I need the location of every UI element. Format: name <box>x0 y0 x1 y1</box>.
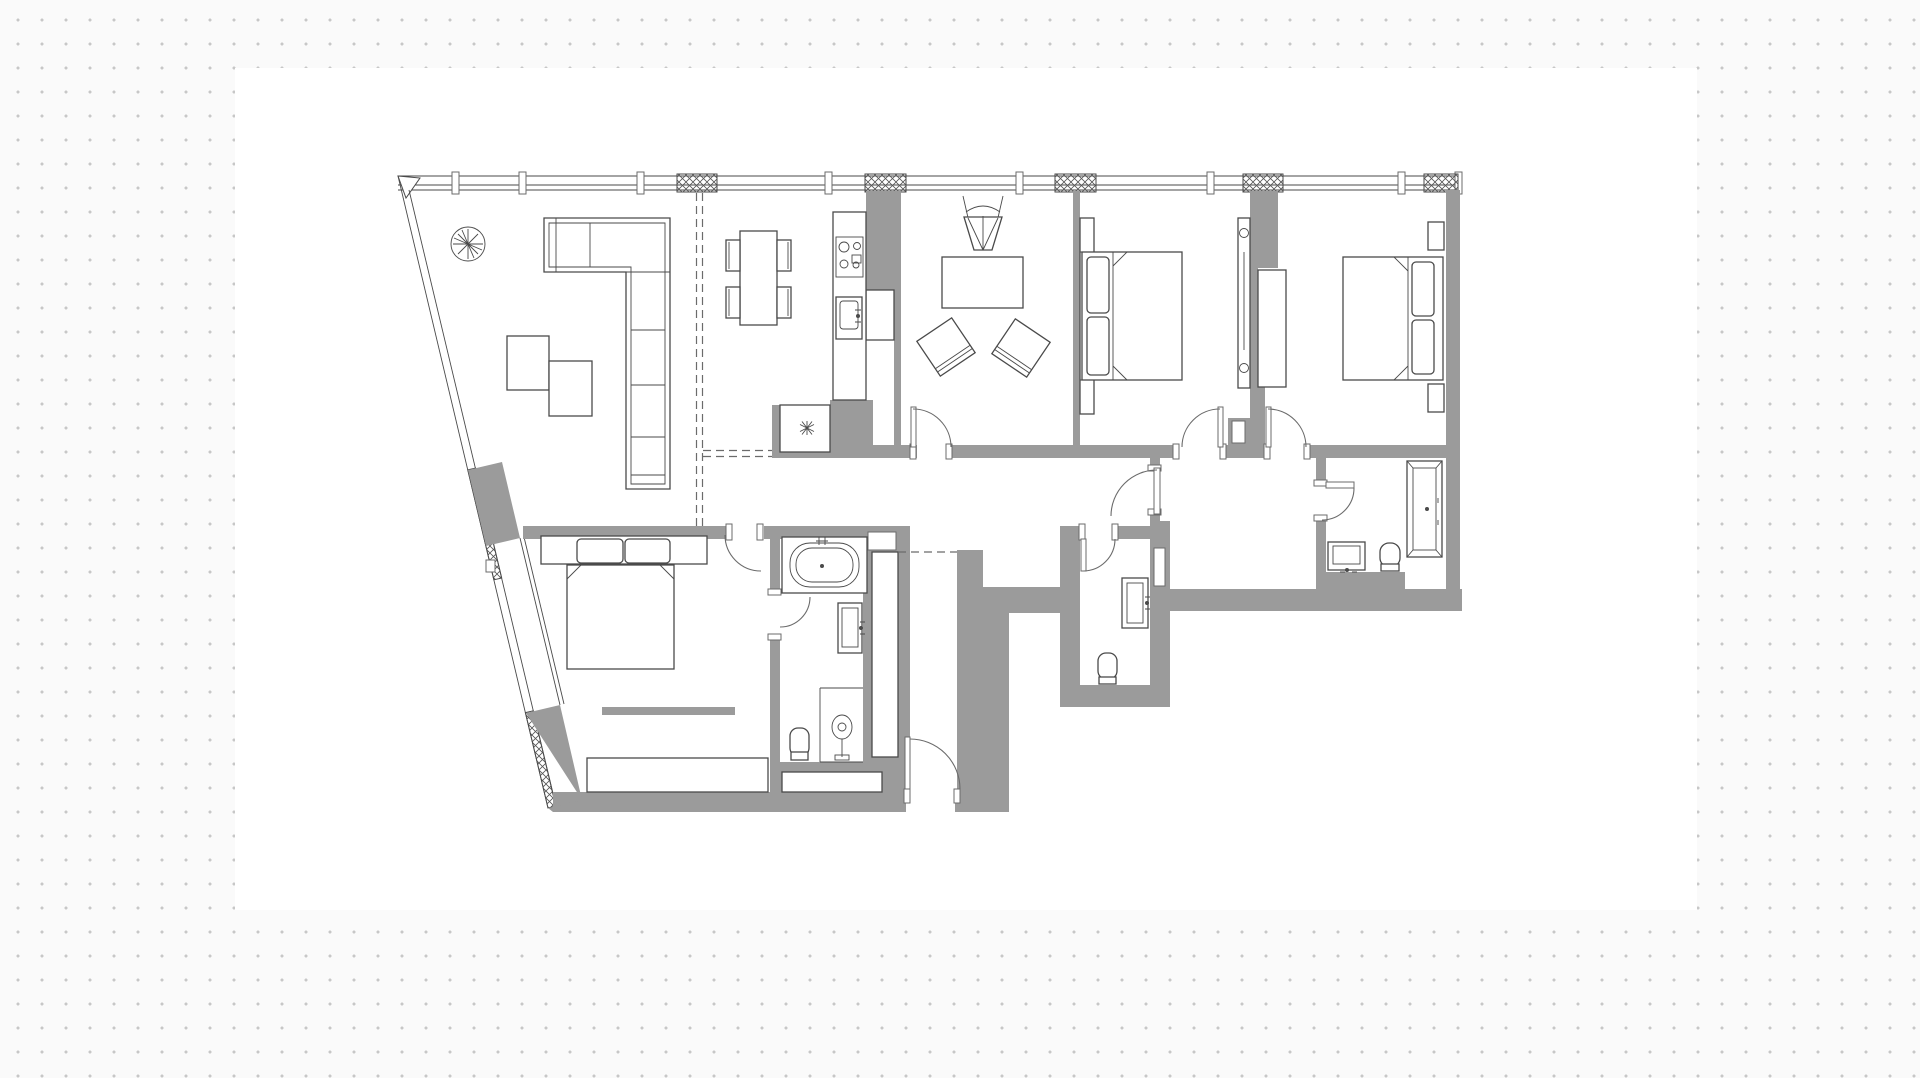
utility-closet <box>780 405 830 452</box>
dining-table <box>740 231 777 325</box>
headboard-shelf <box>541 536 707 564</box>
pillow <box>577 539 623 563</box>
washbasin-icon <box>1122 578 1150 628</box>
tall-closet <box>872 552 898 757</box>
window-wall <box>398 172 1462 198</box>
kitchen-sink-icon <box>836 297 862 339</box>
bench-wardrobe <box>587 758 768 792</box>
utility-niche <box>782 772 882 792</box>
floorplan-drawing <box>0 0 1920 1078</box>
door-bedroom-center <box>1173 407 1226 459</box>
living-area <box>451 218 670 489</box>
mullion-posts <box>452 172 1462 194</box>
bathtub-icon <box>1407 461 1442 557</box>
door-lounge <box>910 407 952 459</box>
nightstand <box>1428 384 1444 412</box>
kitchen-appliance <box>866 290 894 340</box>
toilet-icon <box>790 728 809 760</box>
vent-panels <box>677 174 1458 192</box>
door-bedroom-right <box>1264 407 1310 459</box>
coffee-table-2 <box>549 361 592 416</box>
door-wc <box>1079 524 1118 571</box>
toilet-icon <box>1380 543 1400 571</box>
corner-tip <box>398 176 420 198</box>
armchair-left <box>917 318 975 376</box>
washbasin-icon <box>838 603 865 653</box>
built-in-wardrobe <box>1258 270 1286 387</box>
pillow <box>625 539 670 563</box>
door-bathroom-right <box>1314 480 1354 521</box>
door-ensuite-bath <box>768 589 810 640</box>
washbasin-icon <box>1328 542 1365 572</box>
bathtub-icon <box>782 537 867 593</box>
plant-icon <box>451 227 485 261</box>
bed <box>567 565 674 669</box>
sofa <box>544 218 670 489</box>
wc <box>1098 578 1150 684</box>
shaft-slot <box>868 532 896 550</box>
shower-icon <box>820 688 863 762</box>
bathroom-right <box>1328 461 1442 572</box>
media-strip <box>602 707 735 715</box>
pillow <box>1087 317 1109 375</box>
armchair-right <box>992 319 1050 377</box>
door-lobby <box>1111 465 1161 516</box>
pillow <box>1412 262 1434 316</box>
nightstand <box>1428 222 1444 250</box>
pillow <box>1087 257 1109 313</box>
sliding-panel-icon <box>1238 218 1250 388</box>
lounge-tv-room <box>917 196 1050 377</box>
pillow <box>1412 320 1434 374</box>
lounge-table <box>942 257 1023 308</box>
niche-inset <box>1232 421 1245 443</box>
coffee-table <box>507 336 549 390</box>
dining-area <box>726 231 791 325</box>
ensuite-bathroom <box>782 537 867 762</box>
door-entry <box>904 737 960 803</box>
tv-icon <box>963 196 1003 250</box>
shaft-slot-2 <box>1154 548 1165 586</box>
glazing-break <box>486 560 495 572</box>
bedroom-lower-left <box>541 536 768 792</box>
bedroom-center <box>1080 218 1182 414</box>
toilet-icon <box>1098 653 1117 684</box>
door-bedroom-lower <box>725 524 763 571</box>
floorplan-page <box>0 0 1920 1078</box>
